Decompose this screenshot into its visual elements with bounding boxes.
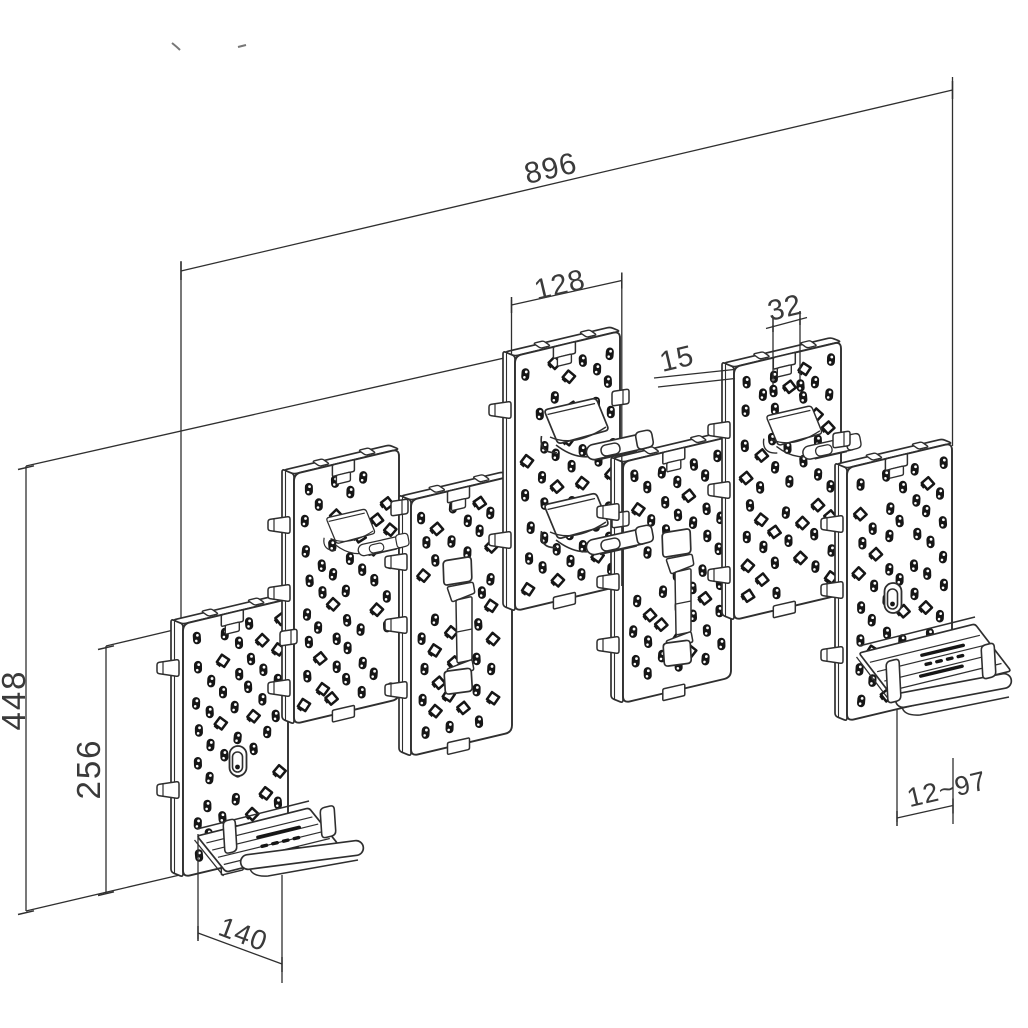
svg-text:448: 448: [0, 669, 32, 730]
svg-text:256: 256: [70, 738, 107, 799]
